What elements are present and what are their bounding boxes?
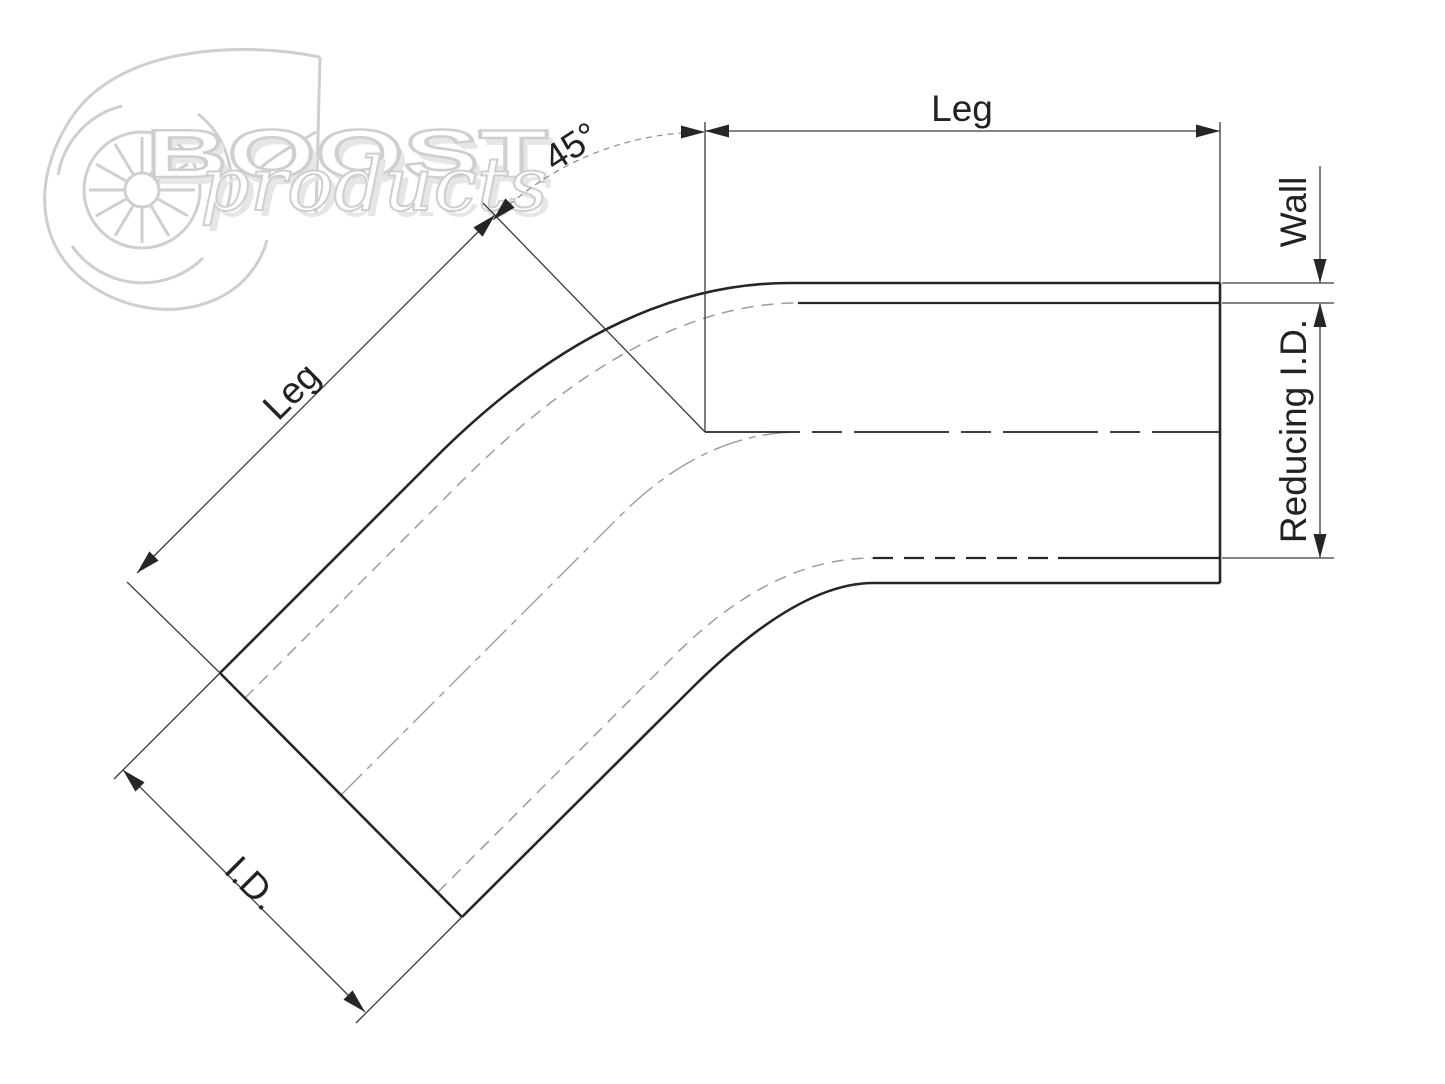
label-leg-top: Leg (931, 88, 993, 129)
label-reducing-id: Reducing I.D. (1273, 319, 1314, 543)
elbow-technical-drawing: BOOST BOOST products products (0, 0, 1445, 1084)
subbrand-text: products (200, 142, 548, 228)
brand-watermark: BOOST BOOST products products (45, 49, 554, 309)
label-wall: Wall (1273, 177, 1314, 248)
centerline-diagonal-leg (341, 432, 800, 795)
ext-line-id-upper (114, 673, 220, 779)
arrow-wall-down (1314, 259, 1327, 283)
label-leg-diagonal: Leg (255, 355, 328, 428)
elbow-body (220, 283, 1220, 917)
arrow-reducing-id-down (1314, 534, 1327, 558)
diagram-canvas: BOOST BOOST products products (0, 0, 1445, 1084)
ext-line-id-lower (356, 917, 462, 1023)
arrow-arc-end (681, 126, 705, 139)
arrow-leg-top-left (705, 125, 729, 138)
ext-line-vertex-diagonal (483, 203, 705, 432)
inner-wall-top-hidden (245, 303, 798, 698)
arrow-leg-top-right (1196, 125, 1220, 138)
extension-lines (114, 122, 1334, 1023)
arrow-reducing-id-up (1314, 303, 1327, 327)
turbo-ring-arc-bottom (72, 246, 203, 283)
dimension-arrowheads (118, 125, 1326, 1017)
dimension-lines (123, 131, 1320, 1012)
ext-line-diag-leg-end (127, 582, 220, 673)
label-id: I.D. (217, 848, 287, 918)
outer-wall-bottom (462, 583, 1220, 917)
outer-wall-top (220, 283, 1220, 673)
